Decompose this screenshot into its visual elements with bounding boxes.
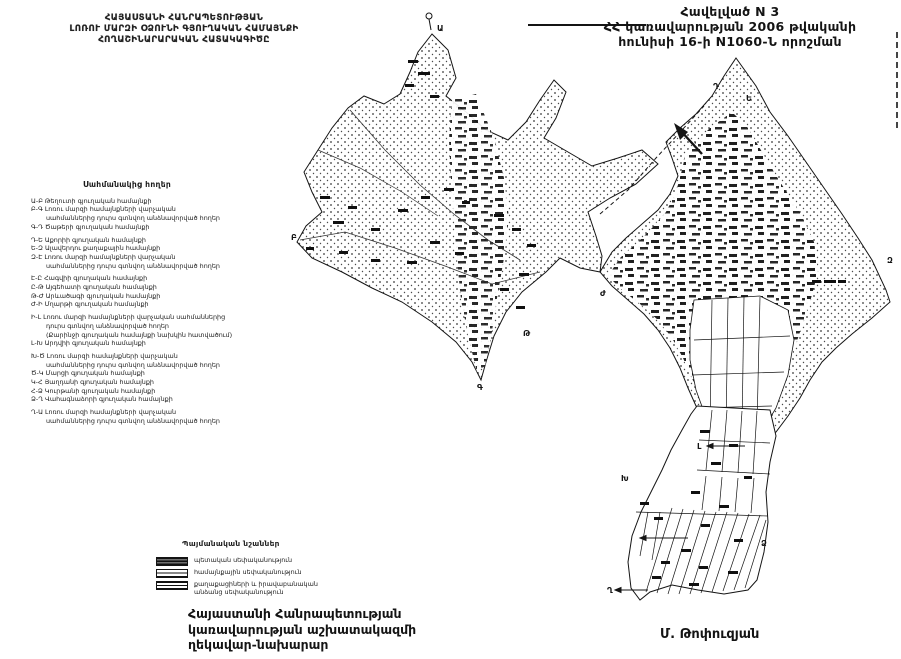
appendix-line3: հունիսի 16-ի N1060-Ն որոշման: [565, 34, 895, 49]
appendix-block: Հավելված N 3 ՀՀ կառավարության 2006 թվակա…: [565, 4, 895, 49]
survey-mark-icon: [426, 13, 432, 30]
border-point-label: Դ: [713, 82, 719, 91]
border-legend-line: (Քարինջի գյուղական համայնքի նախկին հատվա…: [31, 331, 251, 340]
border-legend-line: Լ-Խ Արդվիի գյուղական համայնքի: [31, 339, 251, 348]
sign-label: քաղաքացիների և իրավաբանական անձանց սեփակ…: [194, 581, 326, 596]
border-point-label: Ա: [437, 24, 444, 33]
border-legend-line: Բ-Գ Լոռու մարզի համայնքների վարչական: [31, 205, 251, 214]
border-legend-line: Դ-Ե Աքորիի գյուղական համայնքի: [31, 236, 251, 245]
signature-line1: Հայաստանի Հանրապետության: [188, 606, 416, 622]
border-legend-line: Ղ-Ա Լոռու մարզի համայնքների վարչական: [31, 408, 251, 417]
border-legend-line: Խ-Ծ Լոռու մարզի համայնքների վարչական: [31, 352, 251, 361]
state-ownership-swatch-icon: [156, 557, 188, 566]
private-ownership-swatch-icon: [156, 581, 188, 590]
border-legend: Սահմանակից հողեր Ա-Բ Թեղուտի գյուղական հ…: [31, 181, 251, 426]
sign-row-state: պետական սեփականություն: [156, 557, 336, 566]
map-title: ՀԱՅԱՍՏԱՆԻ ՀԱՆՐԱՊԵՏՈՒԹՅԱՆ ԼՈՌՈՒ ՄԱՐԶԻ ՕՁՈ…: [58, 13, 310, 46]
signature-block: Հայաստանի Հանրապետության կառավարության ա…: [188, 606, 416, 653]
appendix-underline: [528, 24, 646, 26]
border-legend-heading: Սահմանակից հողեր: [83, 181, 251, 190]
border-legend-line: Ձ-Ղ Վահագնաձորի գյուղական համայնքի: [31, 395, 251, 404]
border-legend-line: Ը-Թ Այգեհատի գյուղական համայնքի: [31, 283, 251, 292]
border-legend-line: Ա-Բ Թեղուտի գյուղական համայնքի: [31, 197, 251, 206]
border-legend-line: սահմաններից դուրս գտնվող անձնավորված հող…: [31, 214, 251, 223]
border-legend-line: Հ-Ձ Կուրթանի գյուղական համայնքի: [31, 387, 251, 396]
border-point-label: Գ: [477, 383, 483, 392]
border-point-label: Զ: [887, 256, 893, 265]
border-point-label: Ժ: [600, 289, 606, 298]
conventional-signs-legend: Պայմանական նշաններ պետական սեփականությու…: [156, 539, 336, 599]
signature-line3: ղեկավար-նախարար: [188, 637, 416, 653]
border-point-label: Բ: [291, 233, 297, 242]
signs-heading: Պայմանական նշաններ: [182, 539, 336, 548]
border-legend-line: Կ-Հ Յաղդանի գյուղական համայնքի: [31, 378, 251, 387]
border-point-label: Ձ: [761, 539, 767, 548]
border-point-label: Ե: [746, 94, 752, 103]
border-legend-line: սահմաններից դուրս գտնվող անձնավորված հող…: [31, 417, 251, 426]
map-east-lobe: [600, 58, 890, 442]
border-point-label: Ղ: [607, 586, 613, 595]
sign-label: պետական սեփականություն: [194, 557, 292, 565]
map-title-line3: ՀՈՂԱՇԻՆԱՐԱՐԱԿԱՆ ՀԱՏԱԿԱԳԻԾԸ: [58, 35, 310, 46]
border-point-label: Խ: [621, 474, 629, 483]
border-point-label: Լ: [697, 442, 702, 451]
border-legend-line: Ե-Զ Ալավերդու քաղաքային համայնքի: [31, 244, 251, 253]
appendix-line2: ՀՀ կառավարության 2006 թվականի: [565, 19, 895, 34]
appendix-line1: Հավելված N 3: [565, 4, 895, 19]
signature-line2: կառավարության աշխատակազմի: [188, 622, 416, 638]
border-legend-line: Գ-Դ Ծաթերի գյուղական համայնքի: [31, 223, 251, 232]
sign-label: համայնքային սեփականություն: [194, 569, 302, 577]
border-legend-line: Ի-Լ Լոռու մարզի համայնքների վարչական սահ…: [31, 313, 251, 322]
map-title-line1: ՀԱՅԱՍՏԱՆԻ ՀԱՆՐԱՊԵՏՈՒԹՅԱՆ: [58, 13, 310, 24]
map-title-line2: ԼՈՌՈՒ ՄԱՐԶԻ ՕՁՈՒՆԻ ԳՅՈՒՂԱԿԱՆ ՀԱՄԱՅՆՔԻ: [58, 24, 310, 35]
scanned-map-sheet: ԱԲԳԴԵԶԹԺԼԽՁՂ Հավելված N 3 ՀՀ կառավարությ…: [0, 0, 901, 659]
border-legend-line: դուրս գտնվող անձնավորված հողեր: [31, 322, 251, 331]
map-south-tail: [628, 406, 776, 600]
border-legend-line: սահմաններից դուրս գտնվող անձնավորված հող…: [31, 262, 251, 271]
border-legend-line: Թ-Ժ Արևածագի գյուղական համայնքի: [31, 292, 251, 301]
border-legend-line: Զ-Է Լոռու մարզի համայնքների վարչական: [31, 253, 251, 262]
border-legend-line: Ծ-Կ Մարցի գյուղական համայնքի: [31, 369, 251, 378]
border-legend-line: սահմաններից դուրս գտնվող անձնավորված հող…: [31, 361, 251, 370]
signatory-name: Մ. Թոփուզյան: [660, 627, 759, 642]
border-legend-line: Ժ-Ի Մղարթի գյուղական համայնքի: [31, 300, 251, 309]
border-point-label: Թ: [523, 329, 531, 338]
sign-row-community: համայնքային սեփականություն: [156, 569, 336, 578]
sign-row-private: քաղաքացիների և իրավաբանական անձանց սեփակ…: [156, 581, 336, 596]
border-legend-line: Է-Ը Հագվիի գյուղական համայնքի: [31, 274, 251, 283]
border-legend-items: Ա-Բ Թեղուտի գյուղական համայնքիԲ-Գ Լոռու …: [31, 197, 251, 426]
community-ownership-swatch-icon: [156, 569, 188, 578]
scan-edge-artifact: [896, 32, 898, 128]
